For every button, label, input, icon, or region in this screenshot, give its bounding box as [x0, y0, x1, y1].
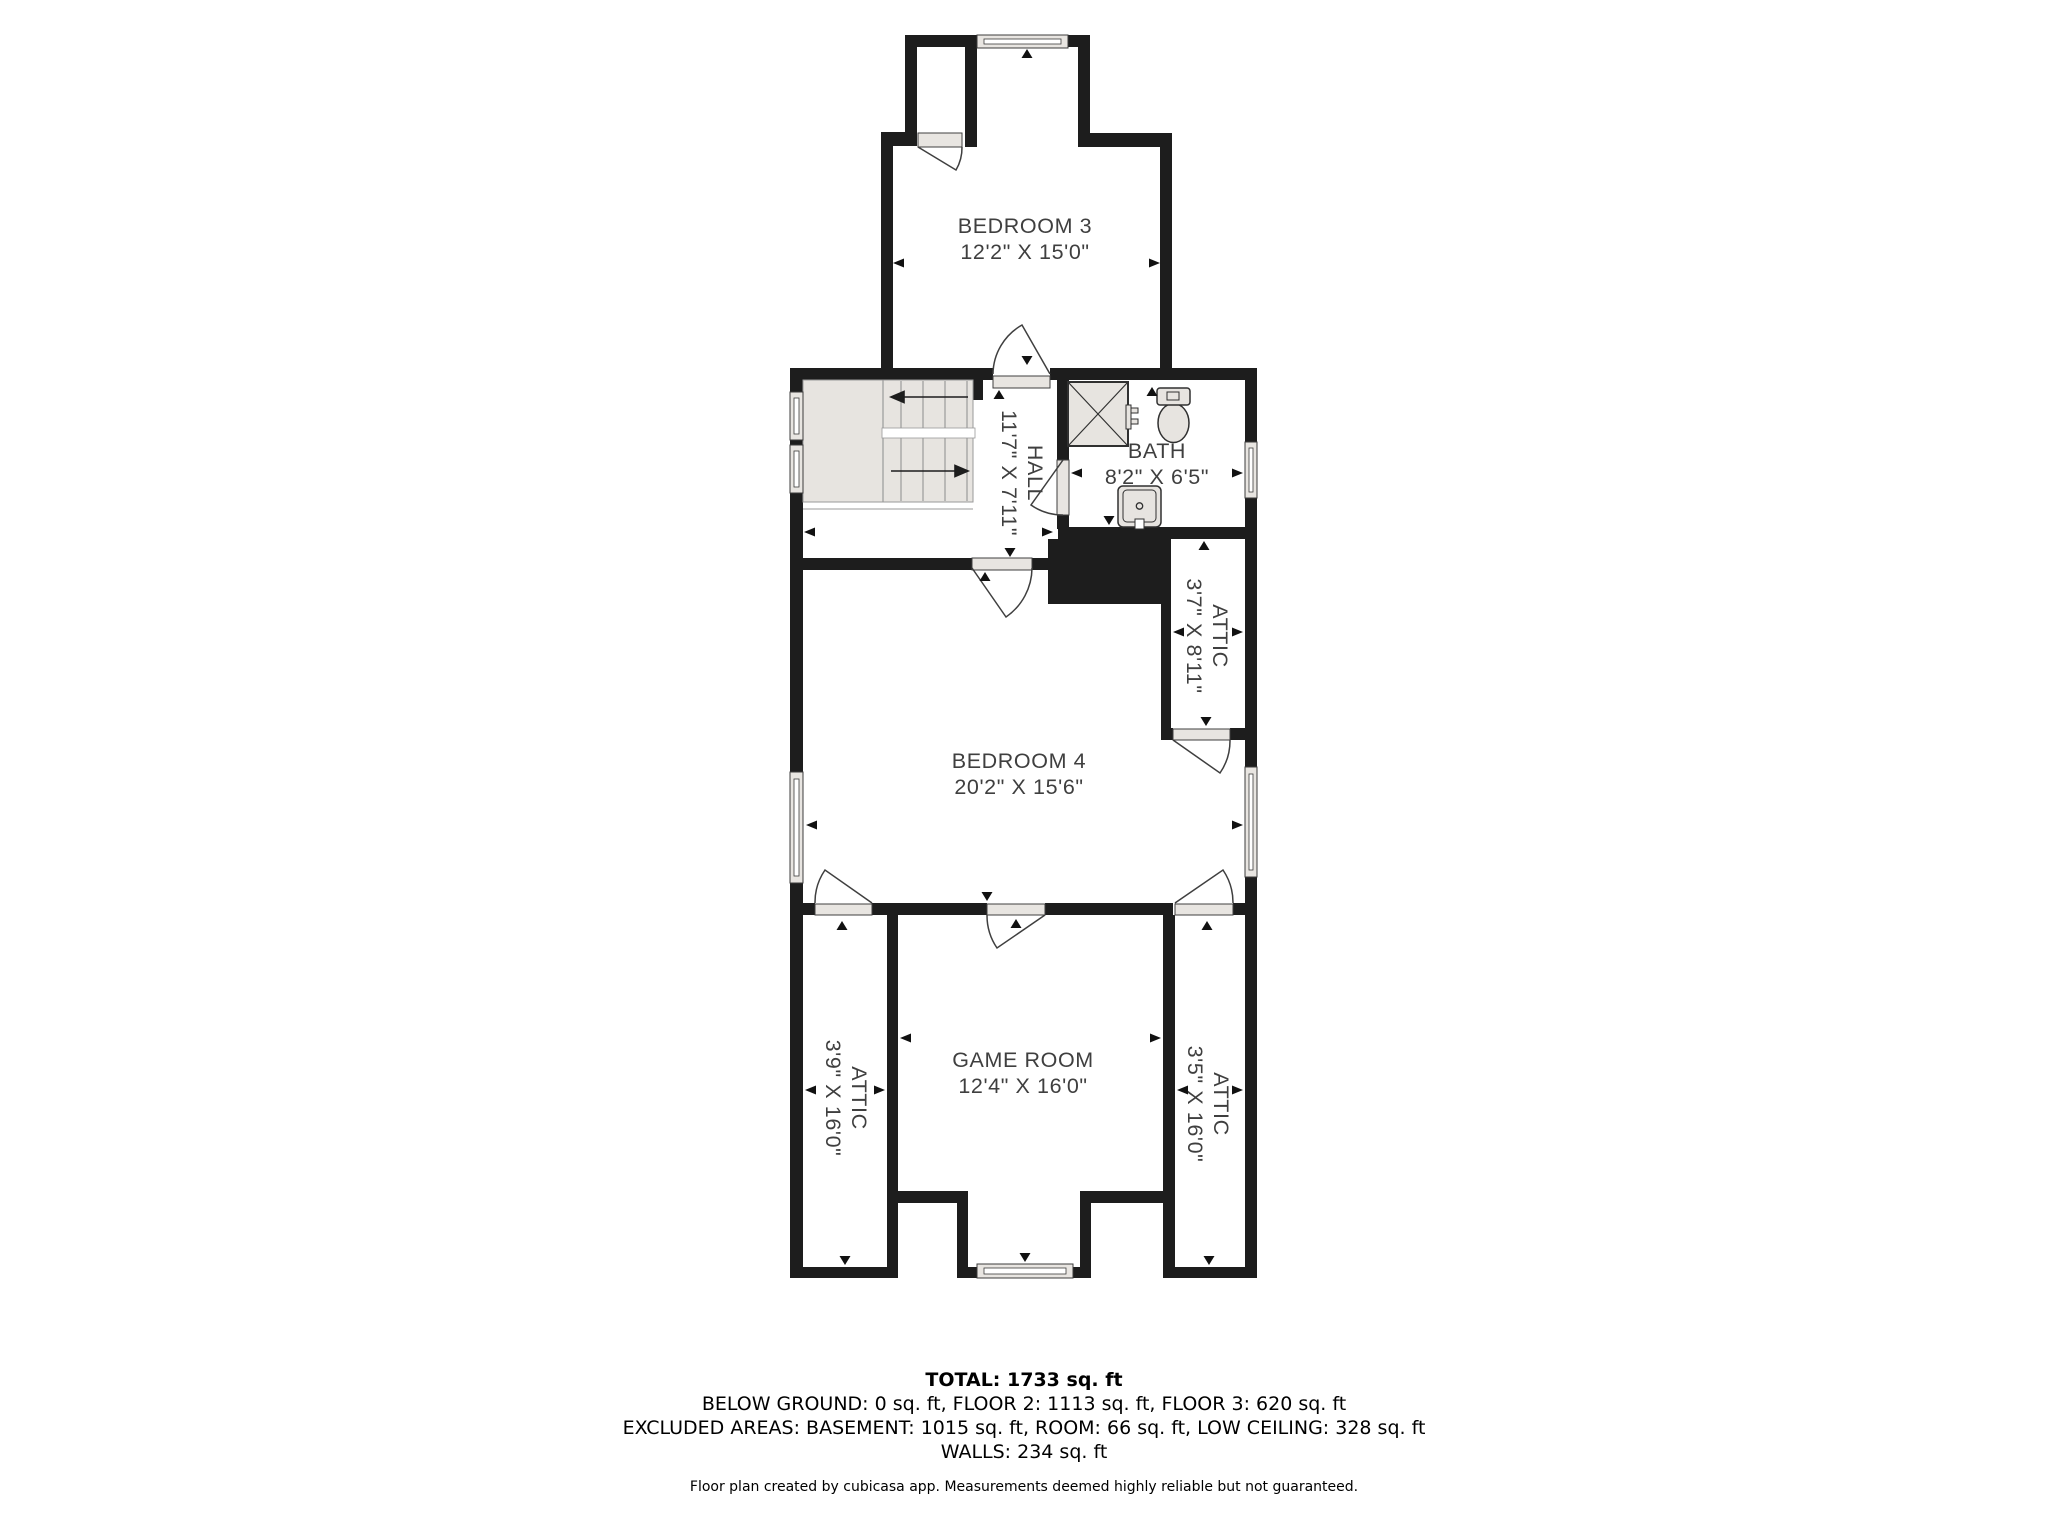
window	[790, 445, 803, 493]
door-swing	[1173, 740, 1230, 773]
room-label-bath: BATH 8'2" X 6'5"	[1105, 438, 1209, 490]
room-name: BEDROOM 3	[958, 213, 1092, 239]
room-dimensions: 3'7" X 8'11"	[1181, 578, 1207, 693]
toilet-icon	[1157, 388, 1190, 443]
room-label-attic-upper: ATTIC 3'7" X 8'11"	[1181, 578, 1233, 693]
window	[977, 35, 1068, 48]
dimension-marker	[1104, 516, 1115, 525]
window	[1245, 767, 1257, 877]
area-summary: TOTAL: 1733 sq. ft BELOW GROUND: 0 sq. f…	[0, 1368, 2048, 1495]
dimension-marker	[1232, 821, 1243, 830]
room-name: BEDROOM 4	[952, 748, 1086, 774]
dimension-marker	[1202, 921, 1213, 930]
walls-area-text: WALLS: 234 sq. ft	[0, 1440, 2048, 1464]
room-name: BATH	[1105, 438, 1209, 464]
room-name: GAME ROOM	[952, 1047, 1094, 1073]
dimension-marker	[1201, 717, 1212, 726]
room-dimensions: 3'5" X 16'0"	[1182, 1046, 1208, 1163]
door-swing	[972, 568, 1032, 617]
room-dimensions: 12'4" X 16'0"	[952, 1073, 1094, 1099]
window	[790, 772, 803, 883]
dimension-marker	[1232, 469, 1243, 478]
dimension-marker	[982, 892, 993, 901]
dimension-marker	[805, 1086, 816, 1095]
room-name: HALL	[1022, 410, 1048, 536]
door-swing	[815, 870, 872, 903]
dimension-marker	[804, 528, 815, 537]
dimension-marker	[1232, 628, 1243, 637]
window	[977, 1264, 1073, 1278]
sink-icon	[1118, 486, 1161, 529]
room-name: ATTIC	[846, 1040, 872, 1157]
window	[1245, 442, 1257, 498]
dimension-marker	[1147, 387, 1158, 396]
door-swing	[993, 325, 1050, 374]
staircase	[803, 380, 975, 509]
room-dimensions: 11'7" X 7'11"	[996, 410, 1022, 536]
dimension-marker	[1150, 1034, 1161, 1043]
dimension-marker	[980, 572, 991, 581]
room-name: ATTIC	[1208, 1046, 1234, 1163]
room-dimensions: 8'2" X 6'5"	[1105, 464, 1209, 490]
total-area-text: TOTAL: 1733 sq. ft	[0, 1368, 2048, 1392]
disclaimer-text: Floor plan created by cubicasa app. Meas…	[0, 1479, 2048, 1495]
window	[790, 392, 803, 440]
dimension-marker	[1011, 919, 1022, 928]
dimension-marker	[893, 259, 904, 268]
dimension-marker	[806, 821, 817, 830]
room-label-attic-left: ATTIC 3'9" X 16'0"	[820, 1040, 872, 1157]
room-dimensions: 20'2" X 15'6"	[952, 774, 1086, 800]
room-label-bedroom-4: BEDROOM 4 20'2" X 15'6"	[952, 748, 1086, 800]
dimension-marker	[840, 1256, 851, 1265]
dimension-marker	[1199, 541, 1210, 550]
dimension-marker	[874, 1086, 885, 1095]
dimension-marker	[1071, 469, 1082, 478]
page: { "floor_plan": { "rooms": [ { "id": "be…	[0, 0, 2048, 1536]
excluded-areas-text: EXCLUDED AREAS: BASEMENT: 1015 sq. ft, R…	[0, 1416, 2048, 1440]
room-dimensions: 12'2" X 15'0"	[958, 239, 1092, 265]
dimension-marker	[1149, 259, 1160, 268]
floor-areas-text: BELOW GROUND: 0 sq. ft, FLOOR 2: 1113 sq…	[0, 1392, 2048, 1416]
dimension-marker	[837, 921, 848, 930]
shower-icon	[1068, 382, 1138, 446]
dimension-marker	[1020, 1253, 1031, 1262]
dimension-marker	[1022, 356, 1033, 365]
room-label-game-room: GAME ROOM 12'4" X 16'0"	[952, 1047, 1094, 1099]
dimension-marker	[1204, 1256, 1215, 1265]
room-label-attic-right: ATTIC 3'5" X 16'0"	[1182, 1046, 1234, 1163]
dimension-marker	[1022, 49, 1033, 58]
door-swing	[1175, 870, 1233, 903]
door-swing	[918, 147, 962, 170]
dimension-marker	[1005, 548, 1016, 557]
room-label-hall: HALL 11'7" X 7'11"	[996, 410, 1048, 536]
dimension-marker	[900, 1034, 911, 1043]
dimension-marker	[994, 390, 1005, 399]
room-name: ATTIC	[1207, 578, 1233, 693]
room-dimensions: 3'9" X 16'0"	[820, 1040, 846, 1157]
room-label-bedroom-3: BEDROOM 3 12'2" X 15'0"	[958, 213, 1092, 265]
